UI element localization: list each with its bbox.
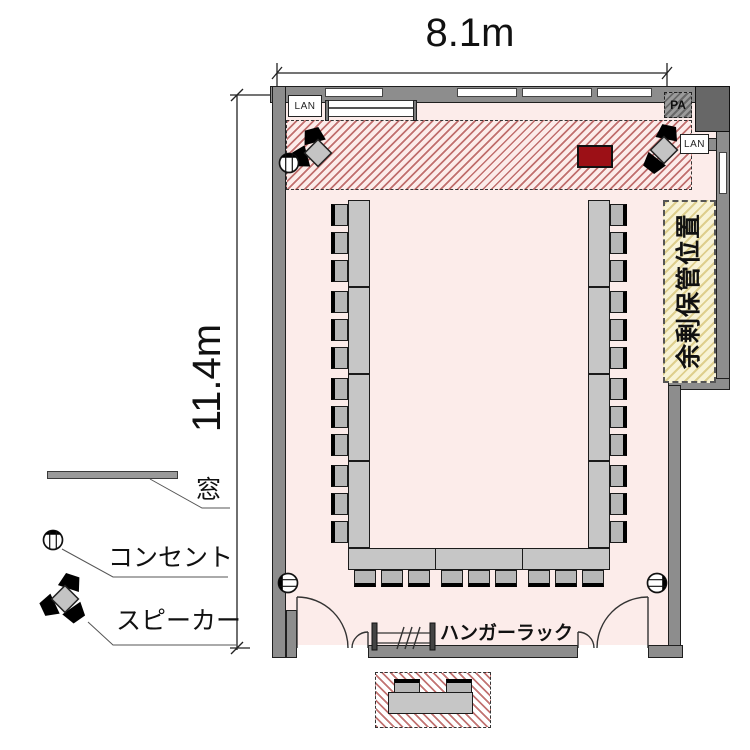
chair bbox=[331, 319, 348, 341]
chair bbox=[610, 521, 627, 543]
legend-speaker-label: スピーカー bbox=[116, 607, 256, 635]
chair bbox=[610, 347, 627, 369]
table-section-right bbox=[588, 461, 610, 548]
front-equipment-zone bbox=[286, 120, 692, 190]
floorplan-canvas: 余剰保管位置 LAN PA LAN 8.1m 11.4m 窓 コンセント スピー… bbox=[0, 0, 750, 750]
chair bbox=[610, 260, 627, 282]
chair bbox=[610, 319, 627, 341]
table-section-right bbox=[588, 200, 610, 287]
hanger-rack-label: ハンガーラック bbox=[440, 621, 600, 647]
wall-left-door-jamb bbox=[286, 610, 297, 658]
chair bbox=[331, 291, 348, 313]
chair bbox=[610, 291, 627, 313]
chair bbox=[331, 493, 348, 515]
lan-box-right: LAN bbox=[680, 134, 709, 154]
table-section-left bbox=[348, 287, 370, 374]
top-wall-window-2 bbox=[457, 88, 517, 97]
chair bbox=[441, 570, 463, 587]
chair bbox=[331, 434, 348, 456]
chair bbox=[468, 570, 490, 587]
chair bbox=[331, 232, 348, 254]
chair bbox=[331, 378, 348, 400]
chair bbox=[610, 204, 627, 226]
chair bbox=[582, 570, 604, 587]
projector-box bbox=[577, 145, 613, 168]
dimension-line-width bbox=[272, 63, 672, 86]
table-section-left bbox=[348, 461, 370, 548]
lan-right-label: LAN bbox=[684, 139, 705, 150]
table-section-bottom bbox=[522, 548, 610, 570]
right-wall-slot bbox=[719, 152, 727, 194]
reception-table bbox=[388, 692, 473, 714]
chair bbox=[331, 521, 348, 543]
table-section-left bbox=[348, 200, 370, 287]
chair bbox=[394, 679, 420, 693]
chair bbox=[331, 347, 348, 369]
lan-left-label: LAN bbox=[295, 101, 316, 112]
chair bbox=[408, 570, 430, 587]
whiteboard-post-left bbox=[325, 100, 329, 121]
chair bbox=[446, 679, 472, 693]
chair bbox=[331, 406, 348, 428]
pa-box: PA bbox=[664, 92, 692, 118]
chair bbox=[331, 465, 348, 487]
surplus-storage-label: 余剰保管位置 bbox=[675, 201, 703, 381]
legend-outlet-label: コンセント bbox=[108, 544, 248, 572]
whiteboard-post-right bbox=[413, 100, 417, 121]
table-section-right bbox=[588, 287, 610, 374]
chair bbox=[610, 378, 627, 400]
legend-window-label: 窓 bbox=[196, 476, 256, 504]
dim-width-label: 8.1m bbox=[370, 10, 570, 56]
table-section-bottom bbox=[348, 548, 436, 570]
table-section-bottom bbox=[435, 548, 523, 570]
top-wall-window-3 bbox=[522, 88, 592, 97]
chair bbox=[528, 570, 550, 587]
chair bbox=[555, 570, 577, 587]
chair bbox=[354, 570, 376, 587]
chair bbox=[610, 465, 627, 487]
pa-label: PA bbox=[670, 98, 686, 112]
whiteboard bbox=[327, 100, 417, 117]
outlet-legend-symbol bbox=[44, 530, 63, 549]
chair bbox=[610, 232, 627, 254]
window-symbol bbox=[47, 471, 178, 479]
wall-bottom-right bbox=[648, 645, 683, 658]
chair bbox=[331, 260, 348, 282]
lan-box-left: LAN bbox=[288, 95, 322, 117]
wall-right-lower bbox=[668, 385, 681, 658]
speaker-legend-symbol bbox=[38, 572, 89, 626]
chair bbox=[381, 570, 403, 587]
top-wall-window-4 bbox=[597, 88, 652, 97]
lan-right-tab bbox=[708, 138, 717, 151]
chair bbox=[610, 434, 627, 456]
dim-depth-label: 11.4m bbox=[184, 293, 230, 463]
chair bbox=[610, 493, 627, 515]
chair bbox=[610, 406, 627, 428]
chair bbox=[495, 570, 517, 587]
table-section-left bbox=[348, 374, 370, 461]
wall-left bbox=[272, 86, 286, 658]
table-section-right bbox=[588, 374, 610, 461]
wall-corner-top-right bbox=[695, 86, 730, 132]
top-wall-window-1 bbox=[325, 88, 383, 97]
chair bbox=[331, 204, 348, 226]
